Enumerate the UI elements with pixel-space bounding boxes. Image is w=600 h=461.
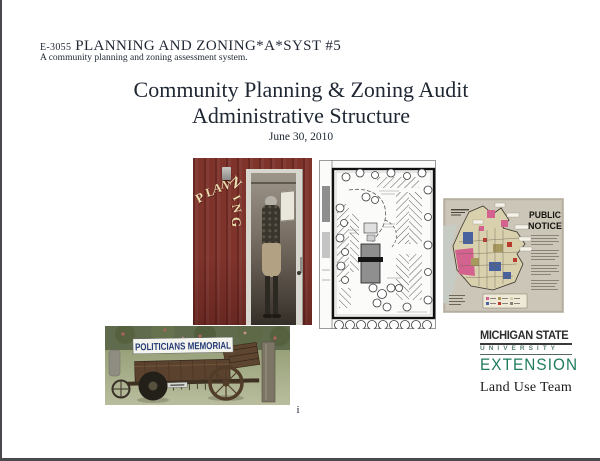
ceiling-line (251, 182, 296, 184)
document-page: E-3055 PLANNING AND ZONING*A*SYST #5 A c… (0, 0, 600, 461)
door-frame (246, 169, 303, 325)
series-title: PLANNING AND ZONING*A*SYST #5 (75, 38, 341, 54)
page-title-line2: Administrative Structure (2, 103, 600, 129)
front-wheel (113, 381, 130, 398)
site-plan-photo (319, 160, 436, 329)
left-wheel (139, 372, 168, 401)
site-plan-drawing (319, 160, 436, 329)
politicians-memorial-sign: POLITICIANS MEMORIAL (133, 337, 233, 354)
public-notice-heading-line2: NOTICE (528, 221, 562, 231)
zoning-map-photo: PUBLIC NOTICE (443, 198, 564, 313)
person-skirt (262, 243, 281, 277)
painted-letter: G (228, 217, 244, 228)
msu-extension-logo: MICHIGAN STATE U N I V E R S I T Y EXTEN… (480, 327, 574, 396)
painted-letter: N (228, 202, 245, 214)
page-title-line1: Community Planning & Zoning Audit (2, 77, 600, 103)
logo-line-michigan-state: MICHIGAN STATE (480, 327, 572, 345)
person-leg (273, 276, 278, 315)
zoning-map: PUBLIC NOTICE (443, 198, 564, 313)
sign-text: POLITICIANS MEMORIAL (135, 341, 231, 354)
logo-line-university: U N I V E R S I T Y (480, 345, 572, 355)
map-legend (483, 294, 527, 308)
logo-text-michigan-state: MICHIGAN STATE (480, 329, 568, 341)
wood-post (262, 342, 275, 402)
public-notice-heading-line1: PUBLIC (529, 210, 561, 220)
land-use-team-label: Land Use Team (480, 380, 574, 396)
page-number: i (2, 404, 594, 416)
document-date: June 30, 2010 (2, 131, 600, 143)
door-knob (297, 271, 301, 275)
building-footprint (361, 244, 380, 283)
door-interior (251, 173, 296, 325)
person-foot (263, 314, 272, 318)
right-wheel (210, 367, 242, 399)
door-handle (300, 257, 303, 273)
series-code: E-3055 (40, 42, 71, 53)
person-leg (265, 276, 270, 315)
interior-window (280, 190, 295, 221)
planning-door-photo: P L A N N I N G (193, 158, 312, 325)
wagon-photo: POLITICIANS MEMORIAL (105, 326, 290, 405)
person-foot (272, 314, 281, 318)
stone-marker (109, 350, 120, 376)
painted-letter: I (230, 193, 243, 202)
series-subtitle: A community planning and zoning assessme… (40, 53, 248, 63)
logo-line-extension: EXTENSION (480, 355, 574, 375)
logo-text-extension: EXTENSION (480, 355, 578, 375)
revision-block (322, 186, 330, 222)
wagon-scene: POLITICIANS MEMORIAL (105, 326, 290, 405)
person-torso (262, 205, 280, 245)
